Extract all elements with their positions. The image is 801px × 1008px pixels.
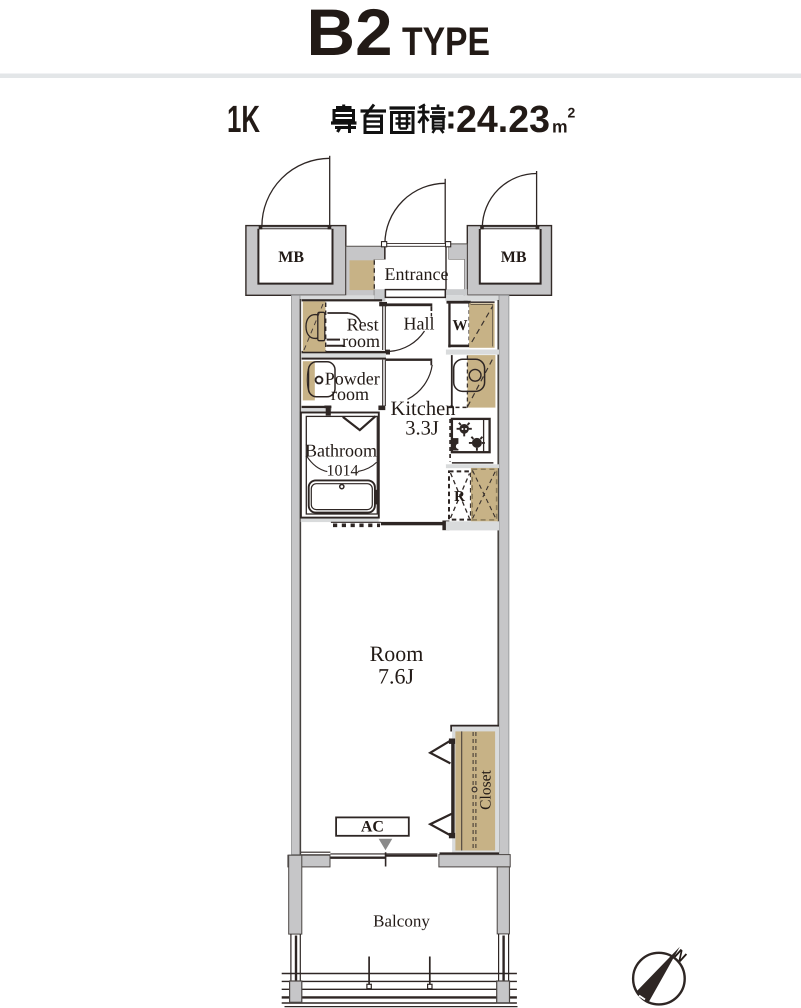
svg-text:AC: AC [361,819,384,836]
svg-text:B2: B2 [307,0,393,69]
svg-text:1014: 1014 [327,463,359,480]
svg-text:W: W [453,318,468,334]
svg-text:R: R [454,489,465,505]
svg-text:Balcony: Balcony [373,911,430,930]
svg-text:3.3J: 3.3J [405,417,439,439]
svg-text:Room: Room [370,641,424,666]
svg-text:room: room [342,331,380,351]
svg-text:MB: MB [278,249,304,266]
svg-text:room: room [331,384,369,404]
svg-text:1K: 1K [227,99,260,141]
svg-text:MB: MB [501,249,527,266]
svg-text:7.6J: 7.6J [378,664,415,689]
svg-text:2: 2 [568,105,576,121]
svg-text:Closet: Closet [478,770,495,810]
svg-text:24.23: 24.23 [456,99,550,141]
svg-text:TYPE: TYPE [402,20,490,64]
svg-text:Bathroom: Bathroom [305,441,377,461]
svg-text:Hall: Hall [404,313,435,333]
svg-text:m: m [552,117,568,137]
svg-text:Entrance: Entrance [385,264,449,284]
